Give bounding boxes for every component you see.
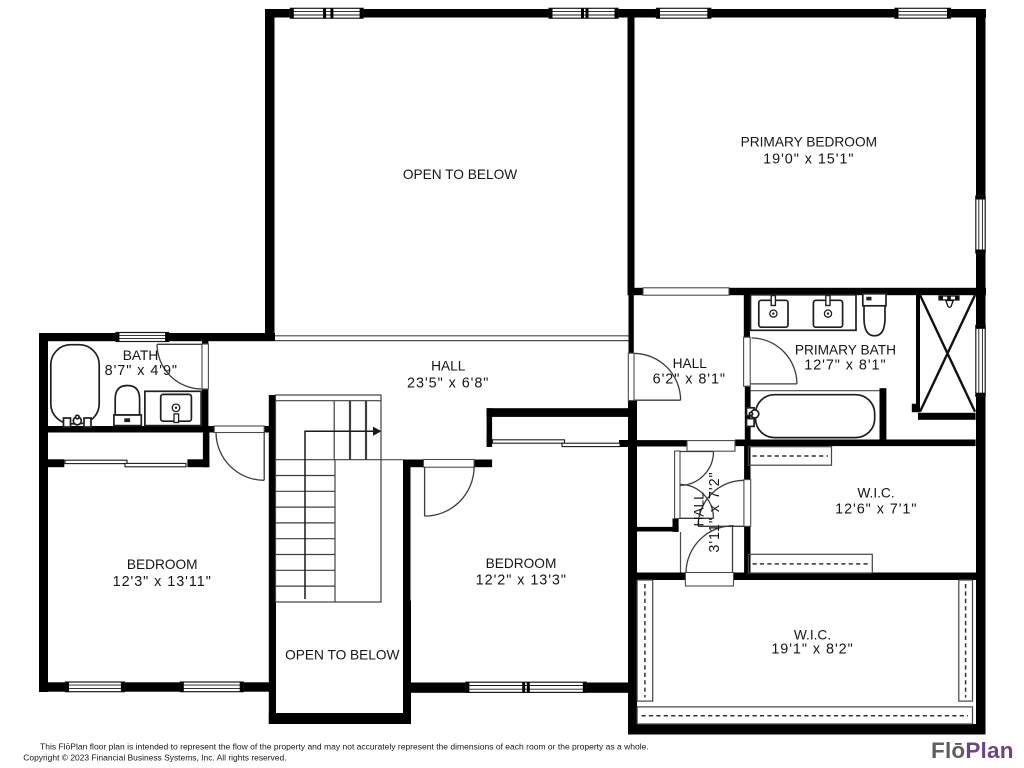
svg-text:This FlōPlan floor plan is int: This FlōPlan floor plan is intended to r… (40, 742, 649, 752)
svg-text:HALL: HALL (692, 492, 707, 527)
svg-text:HALL: HALL (673, 356, 708, 371)
svg-text:12'6" x 7'1": 12'6" x 7'1" (835, 501, 917, 517)
svg-text:BEDROOM: BEDROOM (127, 557, 198, 572)
svg-text:Copyright © 2023 Financial Bus: Copyright © 2023 Financial Business Syst… (23, 753, 286, 763)
svg-text:12'2" x 13'3": 12'2" x 13'3" (476, 572, 567, 588)
svg-text:12'7" x 8'1": 12'7" x 8'1" (804, 358, 886, 374)
svg-text:W.I.C.: W.I.C. (857, 486, 894, 501)
svg-text:BATH: BATH (123, 348, 159, 363)
svg-text:3'11" x 7'2": 3'11" x 7'2" (707, 471, 723, 552)
svg-text:23'5" x 6'8": 23'5" x 6'8" (407, 376, 489, 392)
svg-text:FlōPlan: FlōPlan (931, 738, 1014, 763)
svg-text:BEDROOM: BEDROOM (486, 556, 557, 571)
svg-text:8'7" x 4'9": 8'7" x 4'9" (105, 363, 178, 379)
svg-text:OPEN TO BELOW: OPEN TO BELOW (403, 167, 517, 182)
svg-text:19'0" x 15'1": 19'0" x 15'1" (763, 152, 854, 168)
svg-text:6'2" x 8'1": 6'2" x 8'1" (653, 372, 726, 388)
svg-text:OPEN TO BELOW: OPEN TO BELOW (285, 647, 399, 662)
svg-text:PRIMARY BEDROOM: PRIMARY BEDROOM (741, 135, 877, 150)
svg-text:12'3" x 13'11": 12'3" x 13'11" (113, 574, 212, 590)
svg-text:PRIMARY BATH: PRIMARY BATH (795, 343, 896, 358)
svg-text:HALL: HALL (431, 359, 466, 374)
svg-text:W.I.C.: W.I.C. (794, 627, 831, 642)
svg-text:19'1" x 8'2": 19'1" x 8'2" (771, 642, 853, 658)
